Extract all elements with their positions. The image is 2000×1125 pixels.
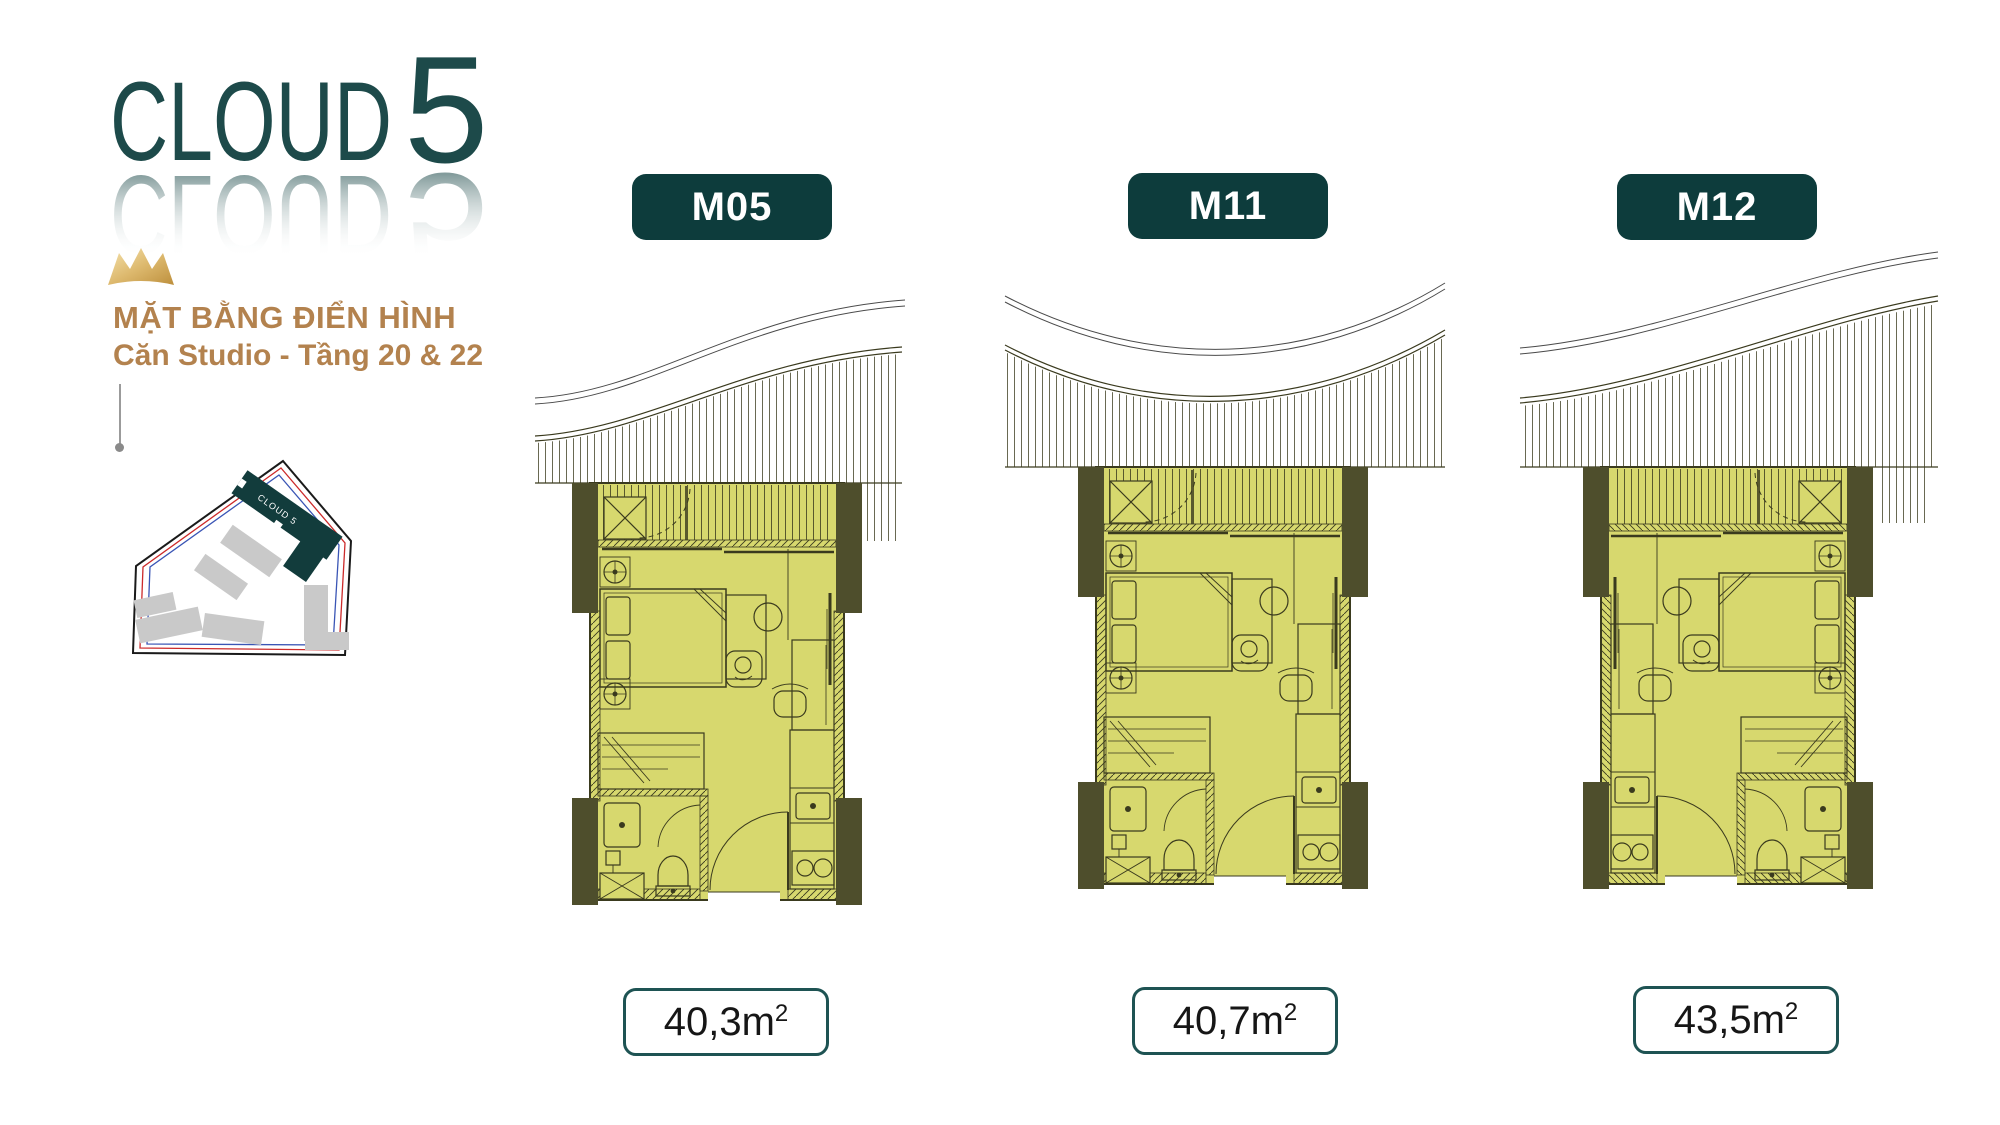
unit-badge-m11: M11 <box>1128 173 1328 239</box>
area-sup: 2 <box>775 1002 788 1026</box>
area-sup: 2 <box>1284 1001 1297 1025</box>
unit-code: M05 <box>692 185 773 230</box>
area-value: 43,5m <box>1674 998 1785 1043</box>
crown-icon <box>106 247 178 289</box>
floor-plans-canvas <box>500 250 1960 962</box>
pointer-line <box>119 384 121 444</box>
area-value: 40,3m <box>664 1000 775 1045</box>
unit-badge-m12: M12 <box>1617 174 1817 240</box>
unit-badge-m05: M05 <box>632 174 832 240</box>
area-label-m05: 40,3m2 <box>623 988 829 1056</box>
unit-code: M12 <box>1677 185 1758 230</box>
floorplan-brochure: { "logo": { "text": "CLOUD", "number": "… <box>0 0 2000 1125</box>
area-label-m12: 43,5m2 <box>1633 986 1839 1054</box>
area-value: 40,7m <box>1173 999 1284 1044</box>
floor-plan-m11 <box>1005 283 1445 890</box>
unit-code: M11 <box>1189 184 1268 229</box>
page-title: MẶT BẰNG ĐIỂN HÌNH <box>113 300 456 336</box>
page-subtitle: Căn Studio - Tầng 20 & 22 <box>113 339 483 373</box>
floor-plan-m05 <box>535 300 905 906</box>
pointer-dot <box>115 443 124 452</box>
area-sup: 2 <box>1785 1000 1798 1024</box>
area-label-m11: 40,7m2 <box>1132 987 1338 1055</box>
site-map: CLOUD 5 <box>103 453 368 665</box>
floor-plan-m12 <box>1520 252 1938 890</box>
